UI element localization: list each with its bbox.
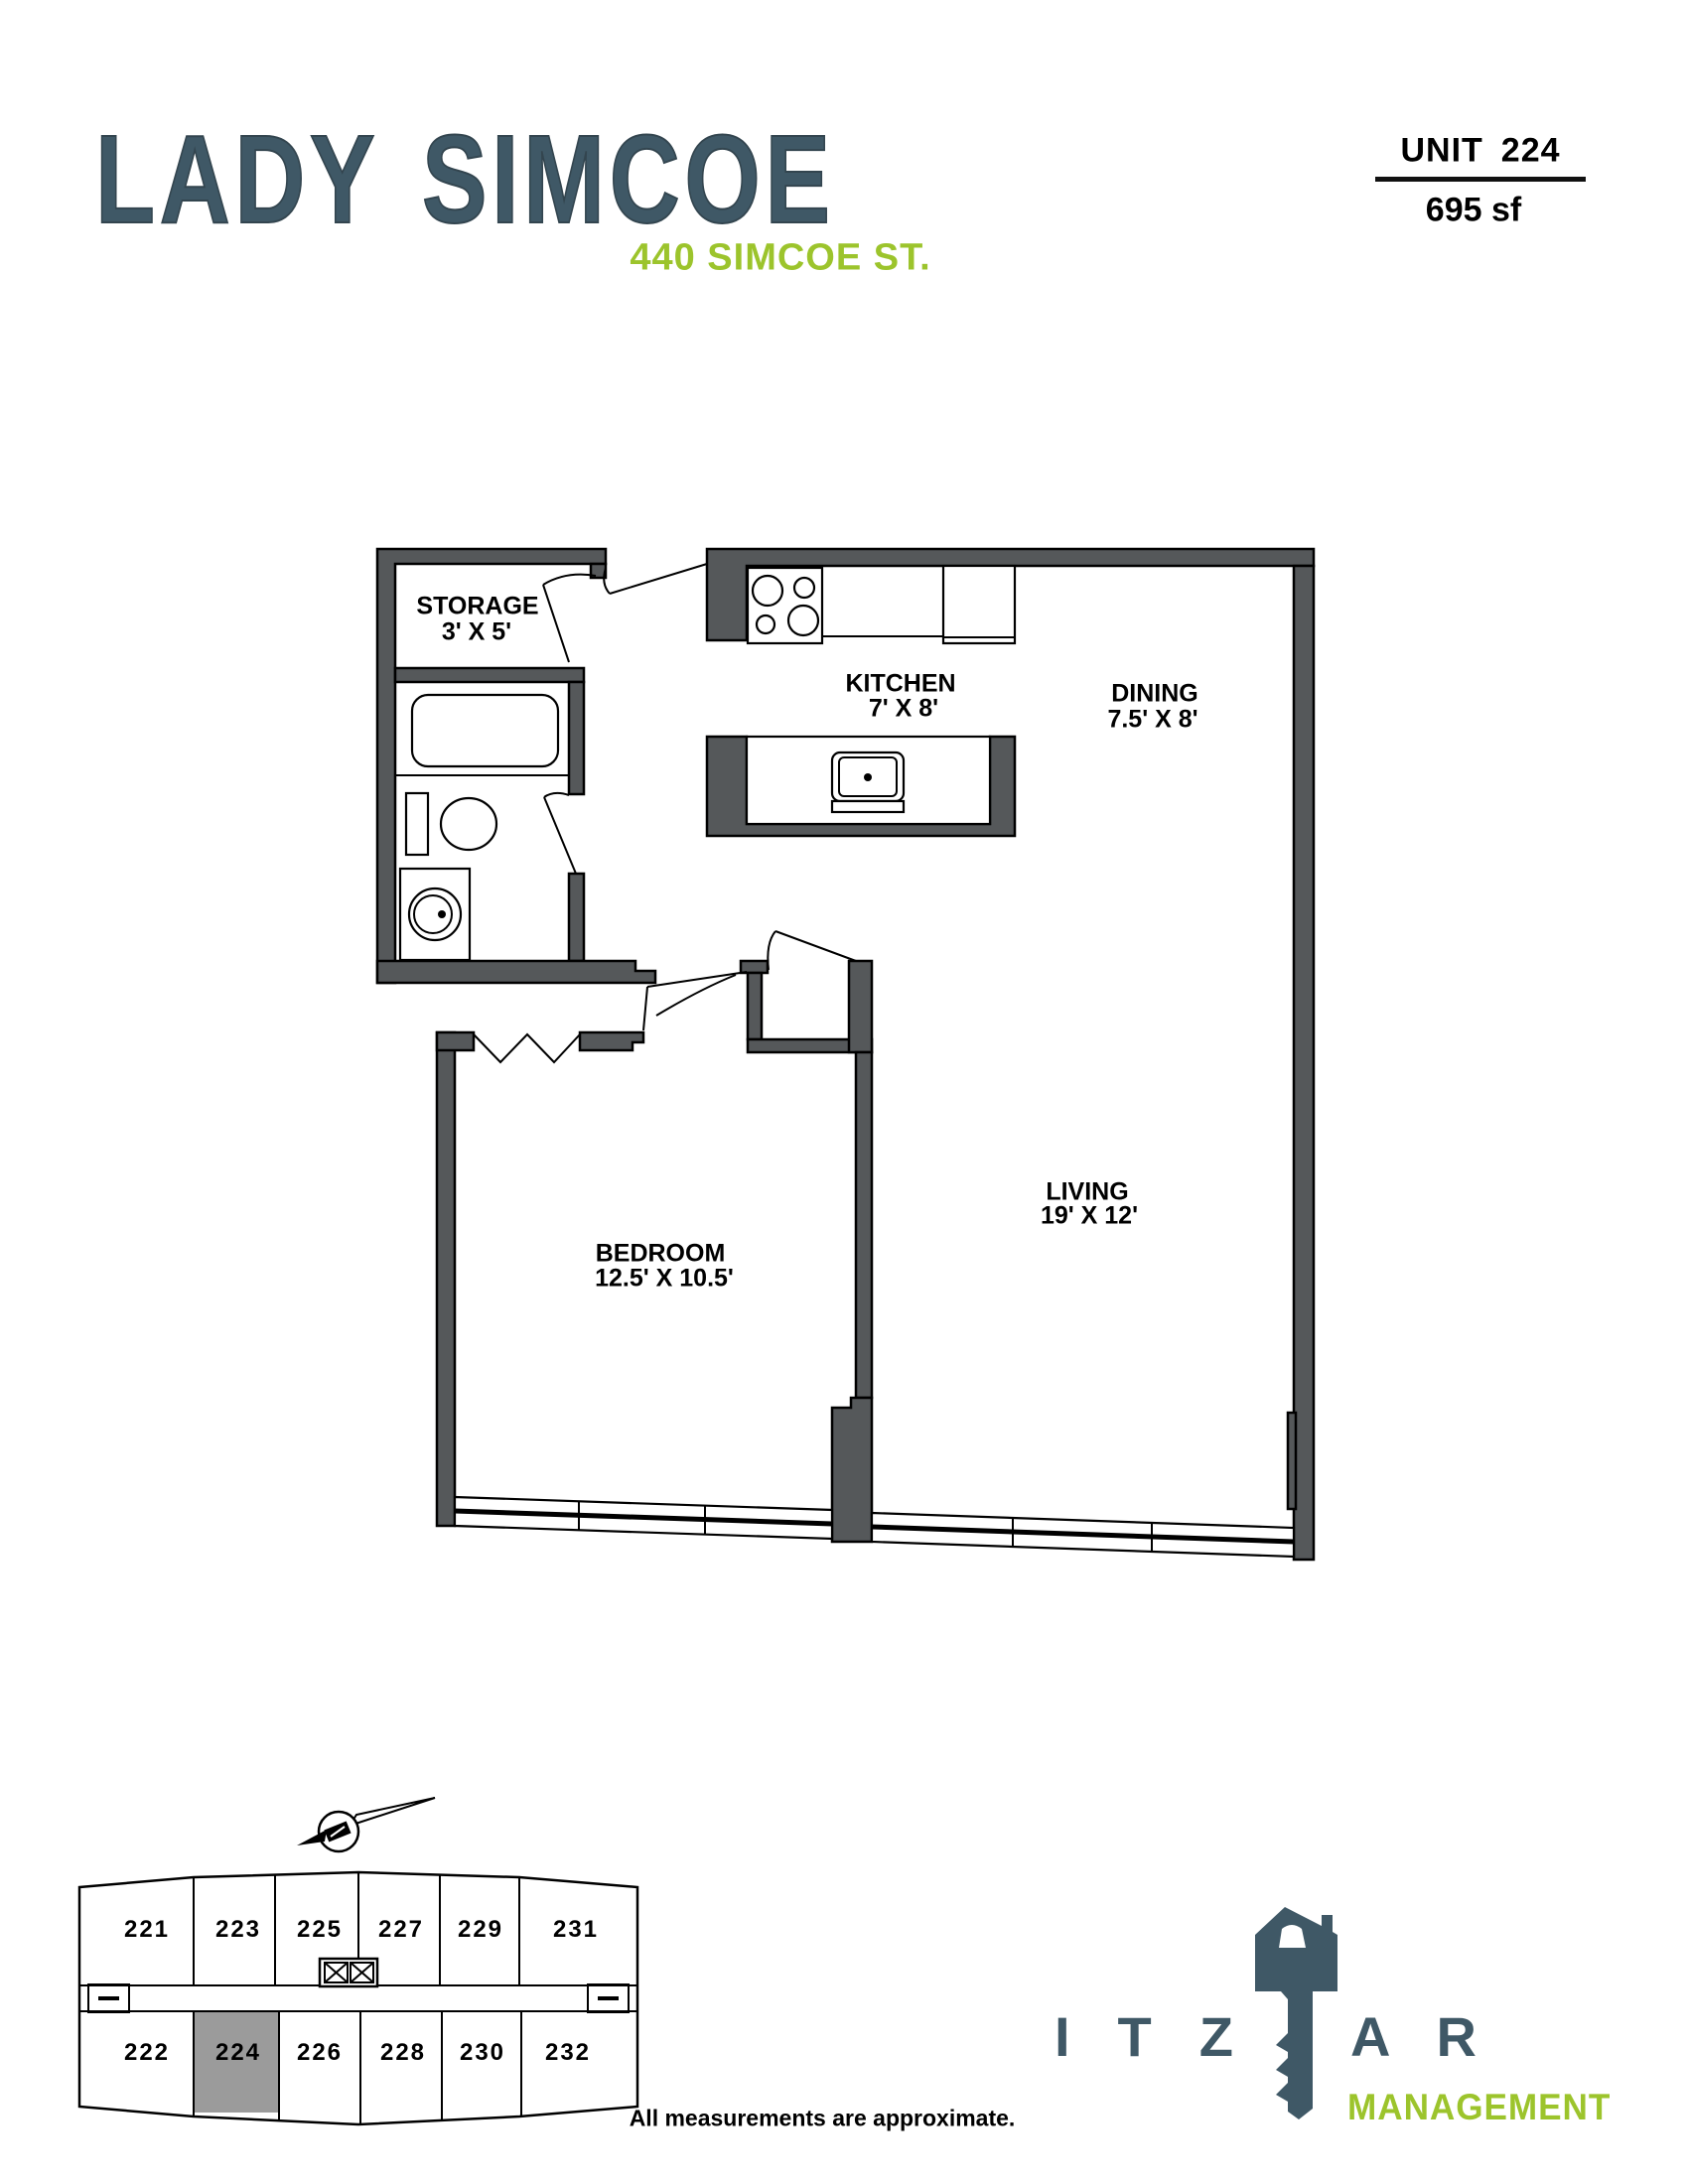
bathtub-icon	[395, 695, 569, 775]
unit-area: 695 sf	[1426, 192, 1521, 230]
keyplan-unit-231: 231	[553, 1916, 599, 1944]
keyplan-unit-228: 228	[380, 2039, 426, 2067]
unit-number: 224	[1501, 132, 1561, 171]
island-sink-icon	[747, 737, 990, 824]
logo-letters-itz: ITZ	[1055, 2011, 1281, 2063]
floorplan-page: LADY SIMCOE 440 SIMCOE ST. UNIT 224 695 …	[0, 0, 1688, 2184]
elevator-icon	[320, 1959, 377, 1986]
building-title: LADY SIMCOE	[95, 107, 835, 251]
logo-management: MANAGEMENT	[1347, 2087, 1611, 2128]
keyplan-unit-230: 230	[460, 2039, 505, 2067]
key-plan	[79, 1872, 637, 2124]
keyplan-unit-229: 229	[458, 1916, 503, 1944]
logo-letters-ar: AR	[1350, 2011, 1522, 2063]
keyplan-unit-221: 221	[124, 1916, 170, 1944]
keyplan-unit-232: 232	[545, 2039, 591, 2067]
keyplan-unit-223: 223	[215, 1916, 261, 1944]
closet-doors-icon	[474, 1034, 580, 1062]
stove-icon	[748, 568, 822, 643]
living-window	[872, 1513, 1294, 1557]
keyplan-unit-224: 224	[215, 2039, 261, 2067]
room-dims-storage: 3' X 5'	[442, 618, 511, 647]
bedroom-window	[455, 1497, 832, 1539]
north-arrow-icon	[297, 1798, 435, 1851]
unit-divider-line	[1375, 177, 1586, 182]
unit-word: UNIT	[1400, 132, 1482, 171]
disclaimer-text: All measurements are approximate.	[630, 2106, 1016, 2132]
room-dims-kitchen: 7' X 8'	[869, 695, 938, 724]
plan-artwork	[0, 0, 1688, 2184]
keyplan-unit-225: 225	[297, 1916, 343, 1944]
room-dims-bedroom: 12.5' X 10.5'	[595, 1265, 734, 1294]
keyplan-unit-227: 227	[378, 1916, 424, 1944]
fridge-icon	[943, 566, 1015, 643]
keyplan-unit-222: 222	[124, 2039, 170, 2067]
room-label-storage: STORAGE	[416, 593, 538, 621]
room-label-dining: DINING	[1111, 680, 1198, 709]
building-address: 440 SIMCOE ST.	[630, 237, 930, 280]
bathroom-sink-icon	[400, 869, 470, 960]
toilet-icon	[406, 793, 496, 855]
unit-label: UNIT 224	[1400, 132, 1560, 171]
keyplan-unit-226: 226	[297, 2039, 343, 2067]
room-dims-living: 19' X 12'	[1041, 1202, 1138, 1231]
room-dims-dining: 7.5' X 8'	[1107, 706, 1197, 735]
